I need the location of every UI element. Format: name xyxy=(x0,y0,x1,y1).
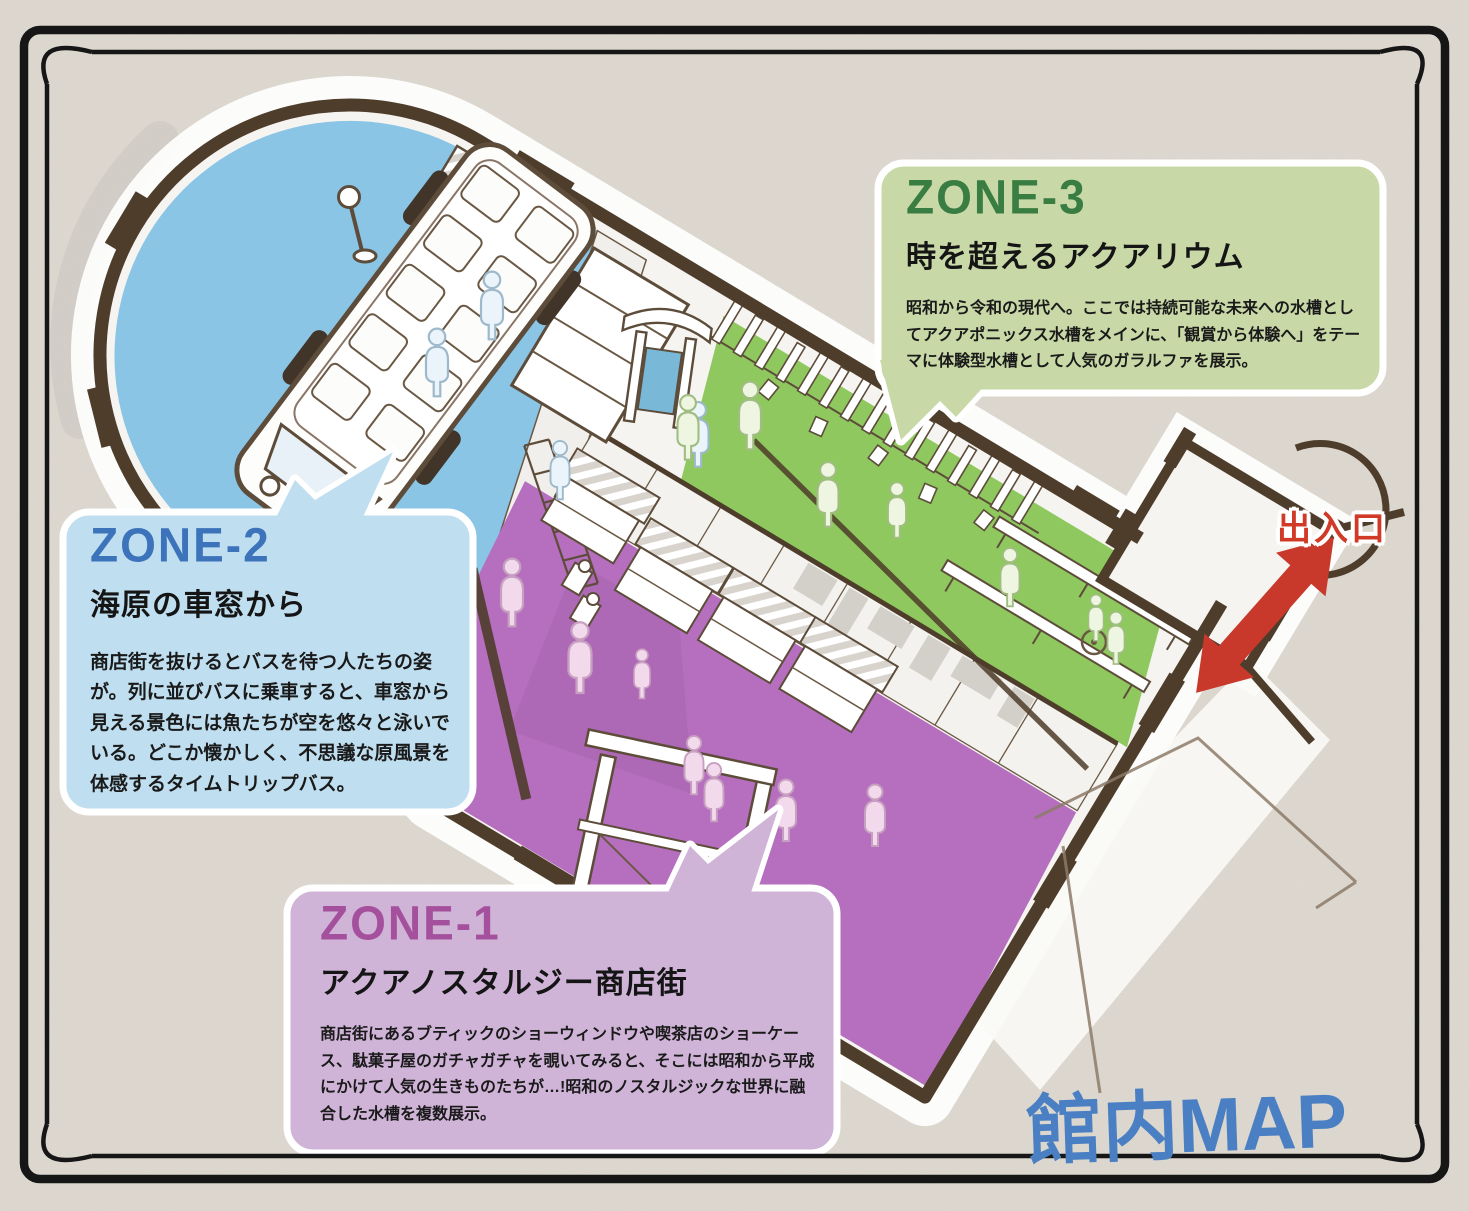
zone-1-card: ZONE-1 アクアノスタルジー商店街 商店街にあるブティックのショーウィンドウ… xyxy=(320,899,818,1128)
zone-3-card: ZONE-3 時を超えるアクアリウム 昭和から令和の現代へ。ここでは持続可能な未… xyxy=(906,173,1364,376)
zone-2-subtitle: 海原の車窓から xyxy=(90,580,452,624)
zone-3-subtitle: 時を超えるアクアリウム xyxy=(906,232,1364,276)
zone-3-description: 昭和から令和の現代へ。ここでは持続可能な未来への水槽としてアクアポニックス水槽を… xyxy=(906,296,1364,376)
zone-2-description: 商店街を抜けるとバスを待つ人たちの姿が。列に並びバスに乗車すると、車窓から見える… xyxy=(90,648,452,800)
zone-1-subtitle: アクアノスタルジー商店街 xyxy=(320,958,818,1002)
map-title-logo: 館内MAP xyxy=(1024,1058,1349,1179)
facility-map-page: { "page": { "title_logo": "館内MAP", "logo… xyxy=(0,0,1469,1211)
entrance-exit-label: 出入口 xyxy=(1277,501,1388,550)
zone-1-title: ZONE-1 xyxy=(320,899,818,947)
zone-2-card: ZONE-2 海原の車窓から 商店街を抜けるとバスを待つ人たちの姿が。列に並びバ… xyxy=(90,521,452,800)
zone-2-title: ZONE-2 xyxy=(90,521,452,569)
zone-1-description: 商店街にあるブティックのショーウィンドウや喫茶店のショーケース、駄菓子屋のガチャ… xyxy=(320,1022,818,1128)
zone-3-title: ZONE-3 xyxy=(906,173,1364,221)
